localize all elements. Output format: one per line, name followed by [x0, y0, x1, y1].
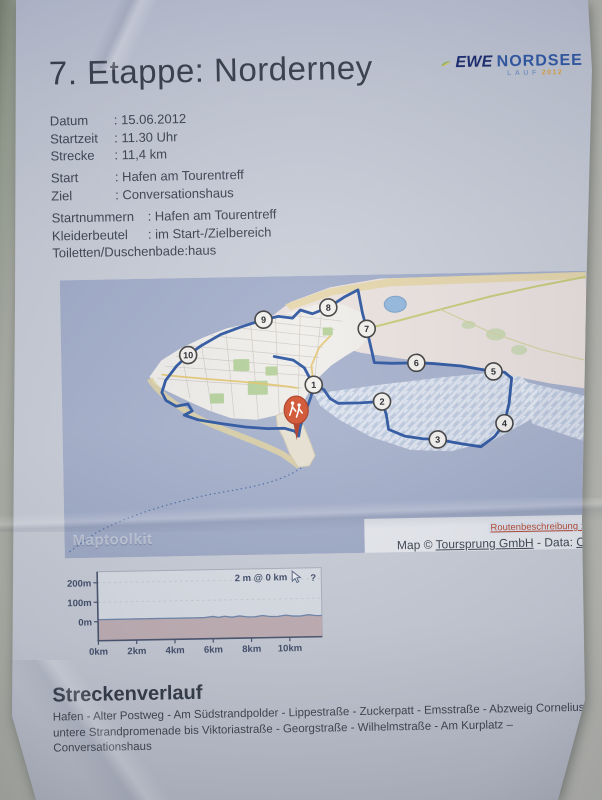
- info-label: Kleiderbeutel: [52, 225, 148, 244]
- photographed-document: 7. Etappe: Norderney EWE NORDSEE LAUF 20…: [0, 0, 602, 800]
- paper-shadow-wrap: 7. Etappe: Norderney EWE NORDSEE LAUF 20…: [0, 0, 602, 800]
- route-marker-label: 1: [311, 380, 316, 390]
- cursor-readout: 2 m @ 0 km: [235, 572, 288, 584]
- route-marker-label: 9: [261, 315, 266, 325]
- info-value: : 15.06.2012: [114, 111, 187, 127]
- route-marker-label: 6: [414, 358, 419, 368]
- schedule-block: Datum: 15.06.2012 Startzeit: 11.30 Uhr S…: [50, 110, 187, 165]
- attribution-mid: - Data:: [533, 535, 576, 550]
- logo-nordsee-text: NORDSEE: [497, 52, 583, 72]
- route-marker-label: 5: [491, 367, 496, 377]
- route-map: 12345678910 Maptoolkit Routenbeschreibun…: [60, 271, 591, 559]
- info-label: Startnummern: [51, 208, 147, 227]
- map-watermark: Maptoolkit: [72, 531, 152, 549]
- help-glyph: ?: [310, 573, 316, 584]
- organisation-block: Startnummern: Hafen am Tourentreff Kleid…: [51, 205, 277, 262]
- page-content: 7. Etappe: Norderney EWE NORDSEE LAUF 20…: [0, 0, 602, 800]
- route-marker-label: 7: [364, 324, 369, 334]
- info-row-datum: Datum: 15.06.2012: [50, 110, 187, 130]
- course-block: Start: Hafen am Tourentreff Ziel: Conver…: [51, 166, 244, 205]
- info-value: : Hafen am Tourentreff: [115, 167, 244, 184]
- x-tick-label: 10km: [278, 643, 303, 654]
- route-marker-label: 3: [435, 435, 440, 445]
- x-tick-label: 2km: [127, 646, 146, 657]
- logo-swoosh-icon: [441, 55, 452, 71]
- logo-ewe-text: EWE: [455, 53, 493, 72]
- info-row-strecke: Strecke: 11,4 km: [50, 145, 187, 165]
- map-attribution-box: Routenbeschreibung : Map © Toursprung Gm…: [364, 515, 591, 553]
- logo-year-text: 2012: [542, 69, 564, 76]
- course-description: Streckenverlauf Hafen - Alter Postweg - …: [52, 675, 601, 758]
- page-title: 7. Etappe: Norderney: [49, 49, 373, 93]
- y-tick-label: 100m: [67, 598, 92, 609]
- ewe-nordsee-lauf-logo: EWE NORDSEE LAUF 2012: [441, 52, 583, 79]
- data-source-link: O: [576, 535, 586, 549]
- chart-canvas: 0km2km4km6km8km10km0m100m200m 2 m @ 0 km…: [59, 563, 329, 662]
- pond: [384, 296, 406, 312]
- info-label: Toiletten/Duschen: [52, 243, 148, 262]
- route-description-link: Routenbeschreibung :: [488, 521, 585, 534]
- elevation-profile-chart: 0km2km4km6km8km10km0m100m200m 2 m @ 0 km…: [59, 563, 329, 662]
- x-tick-label: 4km: [166, 645, 185, 656]
- x-tick-label: 6km: [204, 644, 223, 655]
- paper-sheet: 7. Etappe: Norderney EWE NORDSEE LAUF 20…: [0, 0, 602, 800]
- route-marker-label: 2: [379, 397, 384, 407]
- route-marker-label: 8: [326, 303, 331, 313]
- course-description-body: Hafen - Alter Postweg - Am Südstrandpold…: [53, 701, 602, 758]
- info-value: : im Start-/Zielbereich: [148, 224, 272, 241]
- info-label: Datum: [50, 111, 114, 130]
- route-marker-label: 4: [502, 418, 507, 428]
- info-label: Ziel: [51, 186, 115, 205]
- info-label: Start: [51, 168, 115, 187]
- route-marker-label: 10: [183, 350, 193, 360]
- y-tick-label: 200m: [67, 578, 92, 589]
- info-label: Strecke: [50, 146, 114, 165]
- info-label: Startzeit: [50, 129, 114, 148]
- attribution-prefix: Map ©: [397, 538, 436, 553]
- info-row-ziel: Ziel: Conversationshaus: [51, 183, 244, 204]
- info-value: : 11,4 km: [114, 146, 167, 162]
- x-tick-label: 0km: [89, 647, 108, 658]
- x-tick-label: 8km: [242, 644, 261, 655]
- info-row-toiletten: Toiletten/Duschen: bade:haus: [52, 240, 277, 262]
- info-value: : Conversationshaus: [115, 185, 234, 202]
- info-value: : 11.30 Uhr: [114, 129, 178, 145]
- toursprung-link: Toursprung GmbH: [435, 536, 533, 552]
- map-copyright: Map © Toursprung GmbH - Data: O: [365, 535, 586, 553]
- info-value: : Hafen am Tourentreff: [147, 206, 276, 223]
- logo-lauf-text: LAUF: [507, 70, 540, 78]
- info-value: : bade:haus: [148, 243, 216, 259]
- y-tick-label: 0m: [78, 617, 92, 628]
